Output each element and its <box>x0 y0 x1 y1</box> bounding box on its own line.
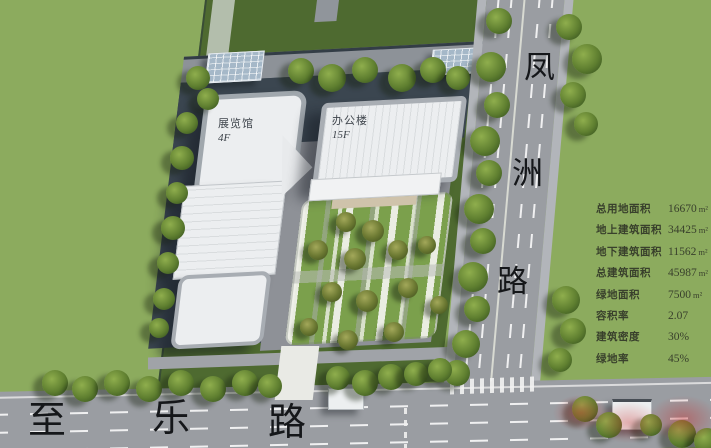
tree-icon <box>326 366 350 390</box>
tree-icon <box>197 88 219 110</box>
road-zhile-label: 路 <box>268 404 306 442</box>
stat-label: 建筑密度 <box>596 329 640 344</box>
road-zhile-label: 至 <box>28 402 66 440</box>
tree-icon <box>420 57 446 83</box>
tree-icon <box>458 262 488 292</box>
tree-icon <box>470 126 500 156</box>
stat-unit: m² <box>699 225 708 235</box>
tree-icon <box>574 112 598 136</box>
stat-label: 地下建筑面积 <box>596 244 662 259</box>
tree-icon <box>476 52 506 82</box>
tree-icon <box>572 44 602 74</box>
tree-icon <box>362 220 384 242</box>
tree-icon <box>104 370 130 396</box>
stats-row: 建筑密度 30% <box>596 329 708 350</box>
tree-icon <box>428 358 452 382</box>
tree-icon <box>404 362 428 386</box>
north-footpath <box>206 0 235 56</box>
tree-icon <box>166 182 188 204</box>
south-entrance-path <box>275 346 320 400</box>
exhibition-hall-floors: 4F <box>218 132 254 146</box>
tree-icon <box>378 364 404 390</box>
north-drive-stub <box>314 0 340 22</box>
tree-icon <box>470 228 496 254</box>
office-tower-name: 办公楼 <box>332 115 368 129</box>
tree-icon <box>336 212 356 232</box>
tree-icon <box>176 112 198 134</box>
stats-row: 地下建筑面积 11562m² <box>596 244 708 265</box>
tree-icon <box>232 370 258 396</box>
tree-icon <box>322 282 342 302</box>
tree-icon <box>452 330 480 358</box>
stat-value: 34425m² <box>668 224 708 236</box>
tree-icon <box>464 194 494 224</box>
tree-icon <box>548 348 572 372</box>
tree-icon <box>153 288 175 310</box>
site-plan-canvas: 展览馆 4F 办公楼 15F 凤 洲 路 至 乐 路 总用地面积 16670m²… <box>0 0 711 448</box>
tree-icon <box>486 8 512 34</box>
exhibition-hall-lower-block <box>170 271 272 350</box>
stat-value: 16670m² <box>668 203 708 215</box>
tree-icon <box>42 370 68 396</box>
stat-label: 地上建筑面积 <box>596 222 662 237</box>
tree-icon <box>476 160 502 186</box>
project-stats-table: 总用地面积 16670m² 地上建筑面积 34425m² 地下建筑面积 1156… <box>596 201 708 372</box>
exhibition-hall-wing <box>173 181 287 280</box>
tree-icon <box>318 64 346 92</box>
stats-row: 绿地率 45% <box>596 351 708 372</box>
tree-icon <box>418 236 436 254</box>
tree-icon <box>168 370 194 396</box>
tree-icon <box>308 240 328 260</box>
stat-unit: m² <box>699 268 708 278</box>
tree-icon <box>560 82 586 108</box>
tree-icon <box>388 64 416 92</box>
stats-row: 绿地面积 7500m² <box>596 287 708 308</box>
stat-unit: m² <box>693 290 702 300</box>
tree-icon <box>157 252 179 274</box>
tree-icon <box>388 240 408 260</box>
tree-icon <box>384 322 404 342</box>
tree-icon <box>161 216 185 240</box>
stat-label: 总用地面积 <box>596 201 651 216</box>
tree-icon <box>556 14 582 40</box>
tree-icon <box>352 370 378 396</box>
road-zhile-label: 乐 <box>152 400 190 438</box>
tree-icon <box>300 318 318 336</box>
exhibition-hall-name: 展览馆 <box>218 118 254 132</box>
stats-row: 总建筑面积 45987m² <box>596 265 708 286</box>
stat-label: 绿地面积 <box>596 287 640 302</box>
stats-row: 总用地面积 16670m² <box>596 201 708 222</box>
tree-icon <box>484 92 510 118</box>
stat-unit: m² <box>699 204 708 214</box>
stat-label: 总建筑面积 <box>596 265 651 280</box>
tree-icon <box>640 414 662 436</box>
office-tower-floors: 15F <box>332 129 368 143</box>
tree-icon <box>344 248 366 270</box>
exhibition-hall-label: 展览馆 4F <box>218 118 254 146</box>
tree-icon <box>338 330 358 350</box>
stat-value: 11562m² <box>668 246 708 258</box>
tree-icon <box>200 376 226 402</box>
tree-icon <box>356 290 378 312</box>
tree-icon <box>149 318 169 338</box>
stat-value: 45987m² <box>668 267 708 279</box>
tree-icon <box>596 412 622 438</box>
road-fengzhou-label: 凤 <box>524 52 555 83</box>
stat-label: 绿地率 <box>596 351 629 366</box>
stat-label: 容积率 <box>596 308 629 323</box>
tree-icon <box>552 286 580 314</box>
tree-icon <box>186 66 210 90</box>
road-fengzhou-label: 路 <box>497 266 528 297</box>
tree-icon <box>72 376 98 402</box>
tree-icon <box>258 374 282 398</box>
stat-value: 2.07 <box>668 310 708 322</box>
tree-icon <box>572 396 598 422</box>
tree-icon <box>668 420 696 448</box>
tree-icon <box>560 318 586 344</box>
office-tower-label: 办公楼 15F <box>332 115 368 143</box>
stat-value: 45% <box>668 353 708 365</box>
stats-row: 地上建筑面积 34425m² <box>596 222 708 243</box>
tree-icon <box>170 146 194 170</box>
tree-icon <box>288 58 314 84</box>
tree-icon <box>352 57 378 83</box>
tree-icon <box>446 66 470 90</box>
road-fengzhou-label: 洲 <box>512 158 543 189</box>
crossing-dash-line <box>404 408 407 448</box>
tree-icon <box>430 296 448 314</box>
tree-icon <box>398 278 418 298</box>
stat-value: 30% <box>668 331 708 343</box>
stats-row: 容积率 2.07 <box>596 308 708 329</box>
solar-panel-canopy-icon <box>205 51 265 84</box>
tree-icon <box>464 296 490 322</box>
stat-unit: m² <box>698 247 707 257</box>
stat-value: 7500m² <box>668 289 708 301</box>
